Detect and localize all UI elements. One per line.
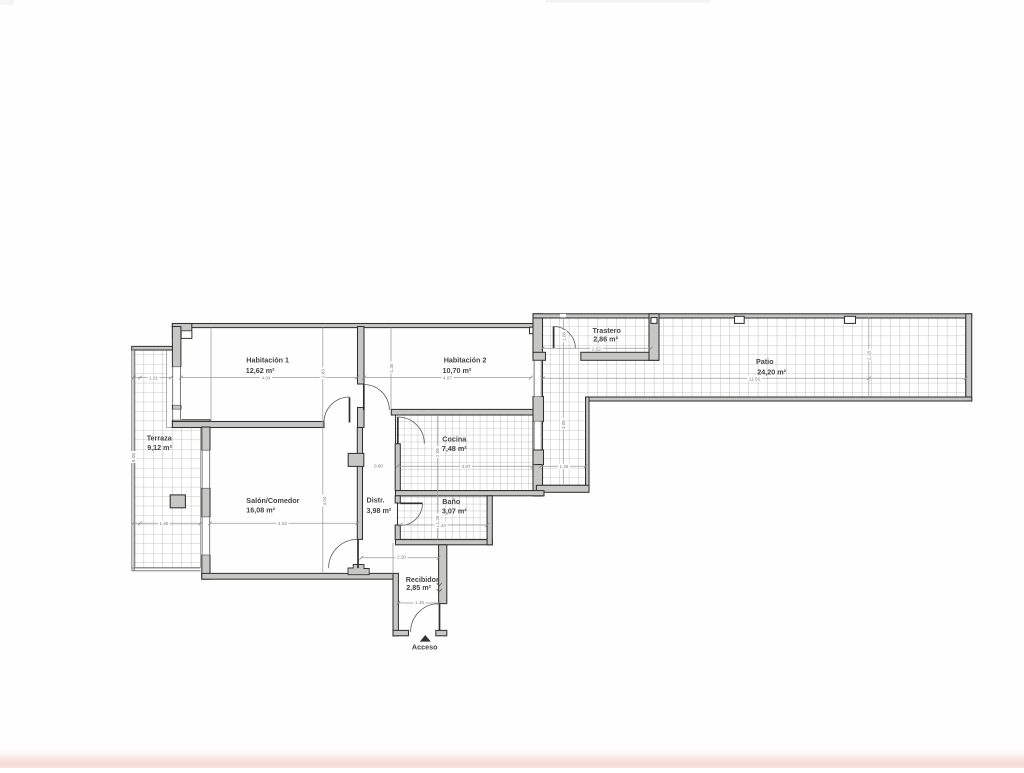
svg-text:24,20 m²: 24,20 m² [757, 367, 786, 376]
svg-text:4.04: 4.04 [322, 496, 327, 505]
svg-text:Salón/Comedor: Salón/Comedor [246, 496, 299, 505]
svg-text:1.35: 1.35 [559, 464, 568, 469]
svg-text:1.18: 1.18 [415, 600, 424, 605]
svg-text:2.06: 2.06 [435, 448, 440, 457]
svg-text:7,48 m²: 7,48 m² [442, 444, 467, 453]
svg-text:2.18: 2.18 [867, 351, 872, 360]
svg-text:1.26: 1.26 [435, 515, 440, 524]
svg-text:Habitación 1: Habitación 1 [246, 356, 289, 365]
svg-text:1.65: 1.65 [160, 521, 169, 526]
svg-text:Baño: Baño [442, 497, 461, 506]
svg-text:1.01: 1.01 [149, 375, 158, 380]
svg-text:9,12 m²: 9,12 m² [147, 443, 172, 452]
svg-text:4.07: 4.07 [443, 376, 452, 381]
svg-text:1.06: 1.06 [561, 332, 566, 341]
svg-text:8.08: 8.08 [131, 453, 136, 462]
svg-text:2.63: 2.63 [320, 369, 325, 378]
svg-text:1.30: 1.30 [389, 363, 394, 372]
svg-text:Distr.: Distr. [367, 496, 385, 505]
svg-text:Acceso: Acceso [412, 642, 438, 651]
svg-text:2,86 m²: 2,86 m² [593, 335, 618, 344]
svg-text:2,85 m²: 2,85 m² [406, 583, 431, 592]
svg-text:16,08 m²: 16,08 m² [246, 505, 275, 514]
svg-text:12,62 m²: 12,62 m² [246, 366, 275, 375]
svg-text:Habitación 2: Habitación 2 [444, 356, 487, 365]
svg-text:Cocina: Cocina [442, 434, 467, 443]
svg-text:Terraza: Terraza [147, 433, 173, 442]
svg-text:2.20: 2.20 [397, 555, 406, 560]
svg-text:3.87: 3.87 [462, 464, 471, 469]
svg-text:4.04: 4.04 [262, 376, 271, 381]
svg-text:4.02: 4.02 [278, 521, 287, 526]
svg-text:Patio: Patio [756, 357, 774, 366]
svg-text:3,07 m²: 3,07 m² [442, 506, 467, 515]
svg-text:10,70 m²: 10,70 m² [443, 366, 472, 375]
svg-text:0.80: 0.80 [374, 464, 383, 469]
svg-text:3.05: 3.05 [561, 420, 566, 429]
svg-text:3,98 m²: 3,98 m² [367, 506, 392, 515]
svg-text:11.56: 11.56 [749, 376, 761, 381]
svg-text:2.52: 2.52 [592, 346, 601, 351]
